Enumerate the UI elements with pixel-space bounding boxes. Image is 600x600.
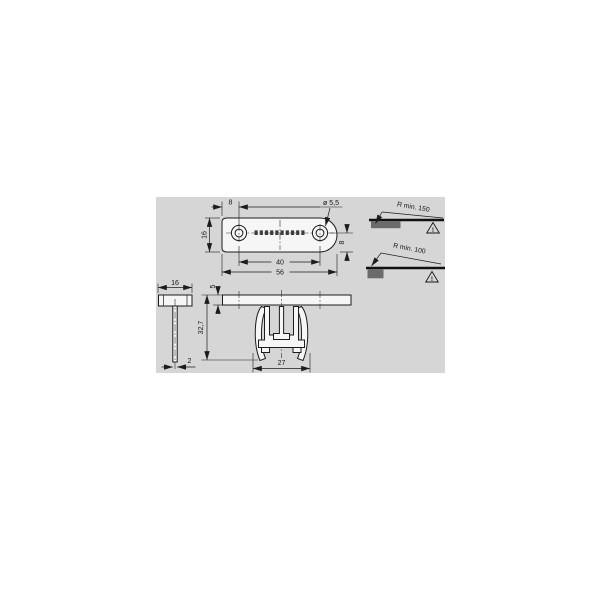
clip-right-foot (293, 348, 301, 353)
front-height-label: 32,7 (198, 321, 205, 335)
bend-radius-label-100: R min. 100 (392, 242, 426, 255)
drawing-panel: 8 ø 5,5 16 8 (156, 197, 445, 373)
page: 8 ø 5,5 16 8 (0, 0, 600, 600)
bend-leader-150 (382, 212, 443, 218)
bend-note-150: R min. 150 ! (369, 201, 444, 234)
dim-width-label: 16 (202, 231, 209, 239)
dim-edge-to-hole-label: 8 (229, 200, 233, 207)
side-thickness-label: 2 (188, 358, 192, 365)
front-thickness-label: 5 (210, 284, 217, 288)
bend-leader-100 (381, 253, 441, 264)
top-view: 8 ø 5,5 16 8 (202, 200, 354, 277)
dim-length-label: 56 (276, 269, 284, 276)
bend-block-100 (368, 269, 384, 278)
bend-note-100: R min. 100 ! (366, 242, 445, 282)
clip-left-foot (262, 348, 270, 353)
clip-center-rib (274, 307, 290, 340)
warning-mark-150: ! (432, 227, 434, 234)
dim-center-to-edge-label: 8 (339, 240, 346, 244)
side-section: 16 2 (158, 280, 196, 371)
bend-radius-label-150: R min. 150 (396, 201, 430, 214)
dim-hole-spacing-label: 40 (276, 259, 284, 266)
front-plate-bar (223, 295, 352, 305)
bend-block-150 (371, 221, 401, 228)
warning-mark-100: ! (431, 276, 433, 283)
side-width-label: 16 (171, 280, 179, 287)
technical-drawing: 8 ø 5,5 16 8 (156, 197, 445, 373)
bend-radius-arrow-100 (372, 253, 382, 266)
front-clip-width-label: 27 (278, 360, 286, 367)
hole-diameter-label: ø 5,5 (323, 200, 339, 207)
front-section: 5 32,7 27 (198, 284, 351, 372)
